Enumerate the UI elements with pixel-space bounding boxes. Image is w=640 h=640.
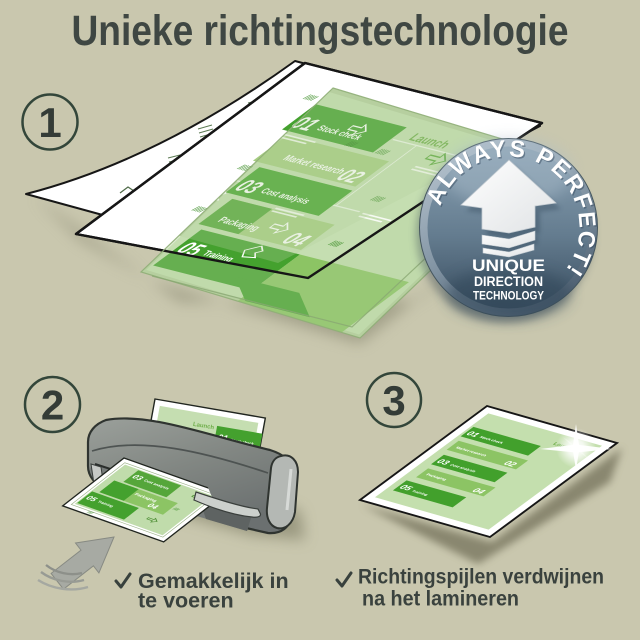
svg-text:2: 2 <box>41 382 64 429</box>
svg-text:na het lamineren: na het lamineren <box>362 588 519 611</box>
svg-text:1: 1 <box>38 99 61 146</box>
svg-text:te voeren: te voeren <box>138 589 234 613</box>
svg-text:UNIQUE: UNIQUE <box>472 256 545 275</box>
svg-text:TECHNOLOGY: TECHNOLOGY <box>473 289 544 303</box>
svg-text:Unieke richtingstechnologie: Unieke richtingstechnologie <box>72 7 569 55</box>
svg-text:DIRECTION: DIRECTION <box>474 274 543 289</box>
svg-text:Richtingspijlen verdwijnen: Richtingspijlen verdwijnen <box>358 566 604 589</box>
svg-text:3: 3 <box>382 377 405 424</box>
